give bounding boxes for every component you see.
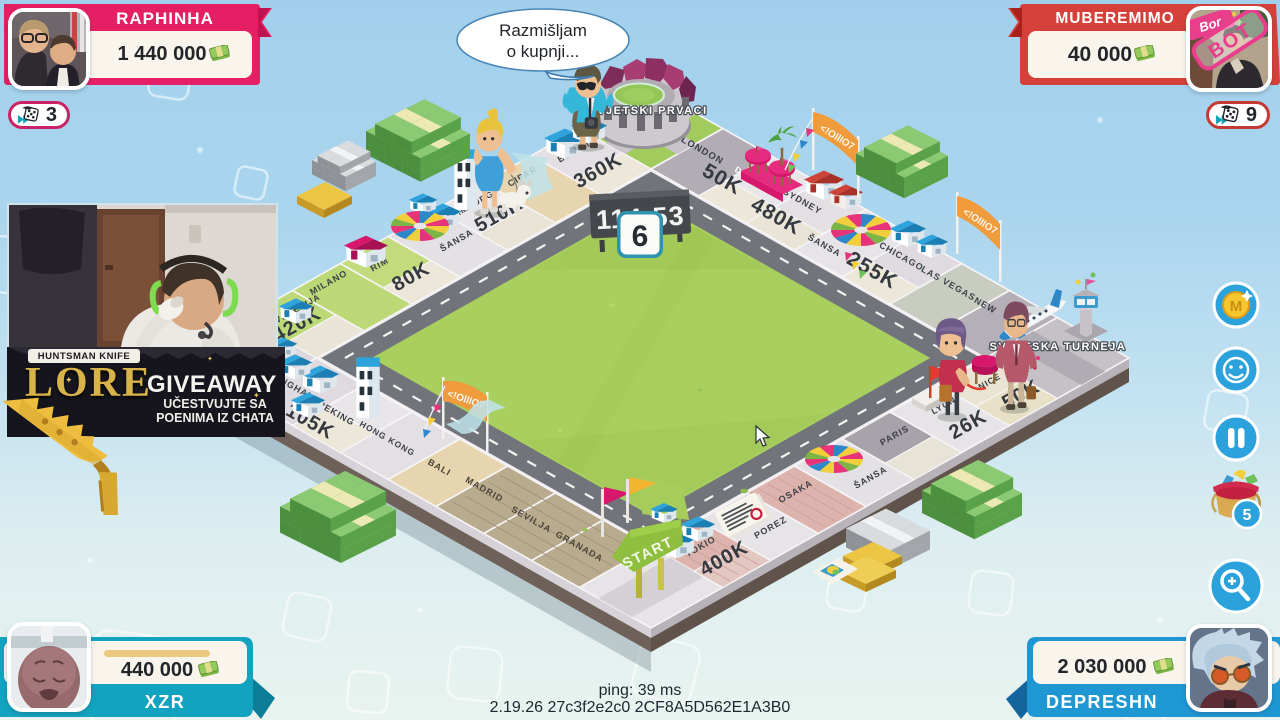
svg-text:5: 5	[1243, 507, 1252, 524]
svg-text:6: 6	[632, 220, 649, 253]
svg-text:M: M	[1230, 298, 1243, 315]
svg-text:SVJETSKI PRVACI: SVJETSKI PRVACI	[588, 105, 707, 117]
svg-text:o kupnji...: o kupnji...	[507, 42, 580, 61]
svg-text:Razmišljam: Razmišljam	[499, 21, 587, 40]
